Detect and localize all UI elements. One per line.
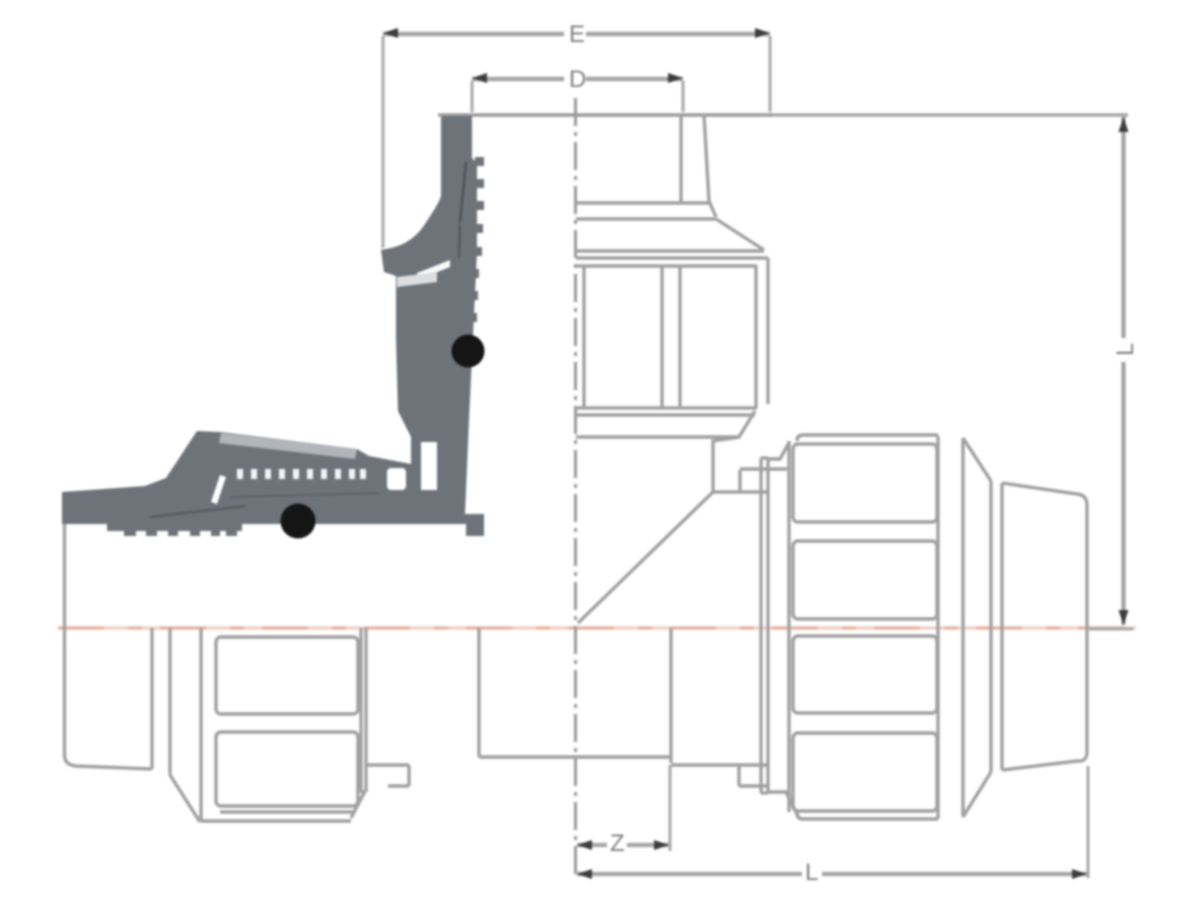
svg-text:Z: Z xyxy=(610,830,625,857)
svg-text:D: D xyxy=(569,66,586,93)
svg-text:L: L xyxy=(805,859,818,886)
svg-text:E: E xyxy=(569,21,585,48)
svg-text:L: L xyxy=(1112,343,1139,356)
